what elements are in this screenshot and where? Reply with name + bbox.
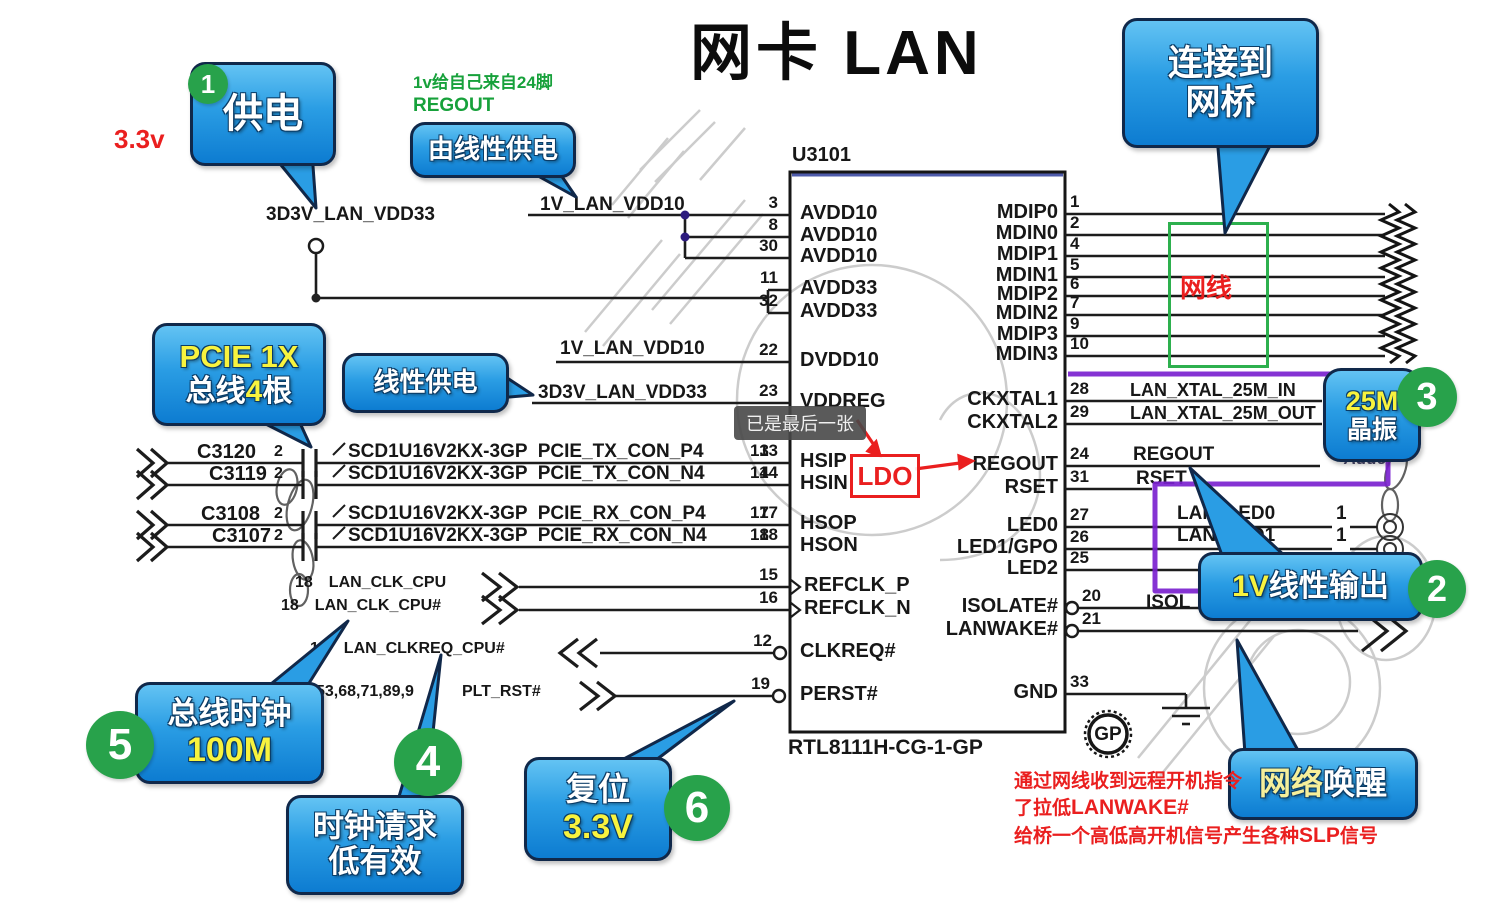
ldo-label: LDO <box>858 461 913 492</box>
bubble-tails <box>246 136 1300 800</box>
callout-crystal-line2: 晶振 <box>1347 416 1397 444</box>
callout-busclk-line1: 总线时钟 <box>168 697 292 732</box>
callout-clock-request: 时钟请求 低有效 <box>286 795 464 895</box>
text: 线性输出 <box>1269 570 1389 603</box>
callout-crystal-line1: 25M <box>1346 386 1399 416</box>
callout-by-linear: 由线性供电 <box>410 122 576 178</box>
callout-bridge-line2: 网桥 <box>1185 83 1255 122</box>
wake-note-line2: 了拉低LANWAKE# <box>1014 793 1189 820</box>
text: 网络 <box>1259 765 1323 801</box>
callout-by-linear-text: 由线性供电 <box>428 135 558 164</box>
tail-reset <box>618 701 734 762</box>
callout-bus-clock: 总线时钟 100M <box>135 682 324 784</box>
ldo-highlight-box: LDO <box>850 454 920 498</box>
tail-wol <box>1237 640 1300 754</box>
callout-1v-output: 1V线性输出 <box>1198 552 1423 621</box>
text: 总线 <box>186 375 246 408</box>
text: 了拉低 <box>1014 798 1071 819</box>
text: 根 <box>262 375 292 408</box>
callout-bridge-line1: 连接到 <box>1168 44 1273 83</box>
step-badge-3: 3 <box>1397 367 1457 427</box>
step-badge-6: 6 <box>664 775 730 841</box>
step-badge-2: 2 <box>1408 560 1466 618</box>
text: 给桥一个高低高开机信号产生各种 <box>1014 826 1299 847</box>
callout-pcie: PCIE 1X 总线4根 <box>152 323 326 426</box>
step-badge-5: 5 <box>86 711 154 779</box>
tail-busclk <box>266 621 348 688</box>
callout-clkreq-line1: 时钟请求 <box>313 810 437 845</box>
step-badge-4: 4 <box>394 728 462 796</box>
callout-linear: 线性供电 <box>342 353 509 413</box>
schematic-slide: 网卡 LAN U3101 RTL8111H-CG-1-GP GP Adde AV… <box>0 0 1506 907</box>
callout-clkreq-line2: 低有效 <box>329 845 422 880</box>
text: 1V <box>1232 570 1269 603</box>
callout-bridge: 连接到 网桥 <box>1122 18 1319 148</box>
text: SLP <box>1299 824 1340 847</box>
callout-pcie-line2: 总线4根 <box>186 375 293 409</box>
wake-note-line1: 通过网线收到远程开机指令 <box>1014 766 1242 793</box>
text: 唤醒 <box>1323 765 1387 801</box>
player-tooltip: 已是最后一张 <box>734 406 866 440</box>
text: LANWAKE# <box>1071 796 1189 819</box>
callout-power-text: 供电 <box>223 92 303 137</box>
callout-reset-line2: 3.3V <box>563 808 633 846</box>
cable-label: 网线 <box>1180 268 1232 305</box>
tail-bridge <box>1217 136 1275 233</box>
wake-note-line3: 给桥一个高低高开机信号产生各种SLP信号 <box>1014 821 1378 848</box>
callout-wake-on-lan: 网络唤醒 <box>1228 748 1418 820</box>
callout-1v-output-text: 1V线性输出 <box>1232 570 1389 604</box>
voltage-note-3v3: 3.3v <box>114 124 165 155</box>
callout-linear-text: 线性供电 <box>373 368 477 397</box>
green-note-line2: REGOUT <box>413 95 494 117</box>
green-note-line1: 1v给自己来自24脚 <box>413 68 553 93</box>
text: 信号 <box>1340 826 1378 847</box>
callout-reset-line1: 复位 <box>566 772 630 808</box>
callout-wol-text: 网络唤醒 <box>1259 766 1387 802</box>
callout-pcie-line1: PCIE 1X <box>180 340 299 375</box>
callout-reset: 复位 3.3V <box>524 757 672 861</box>
step-badge-1: 1 <box>188 64 228 104</box>
callout-busclk-line2: 100M <box>187 731 272 769</box>
text: 4 <box>246 375 263 408</box>
